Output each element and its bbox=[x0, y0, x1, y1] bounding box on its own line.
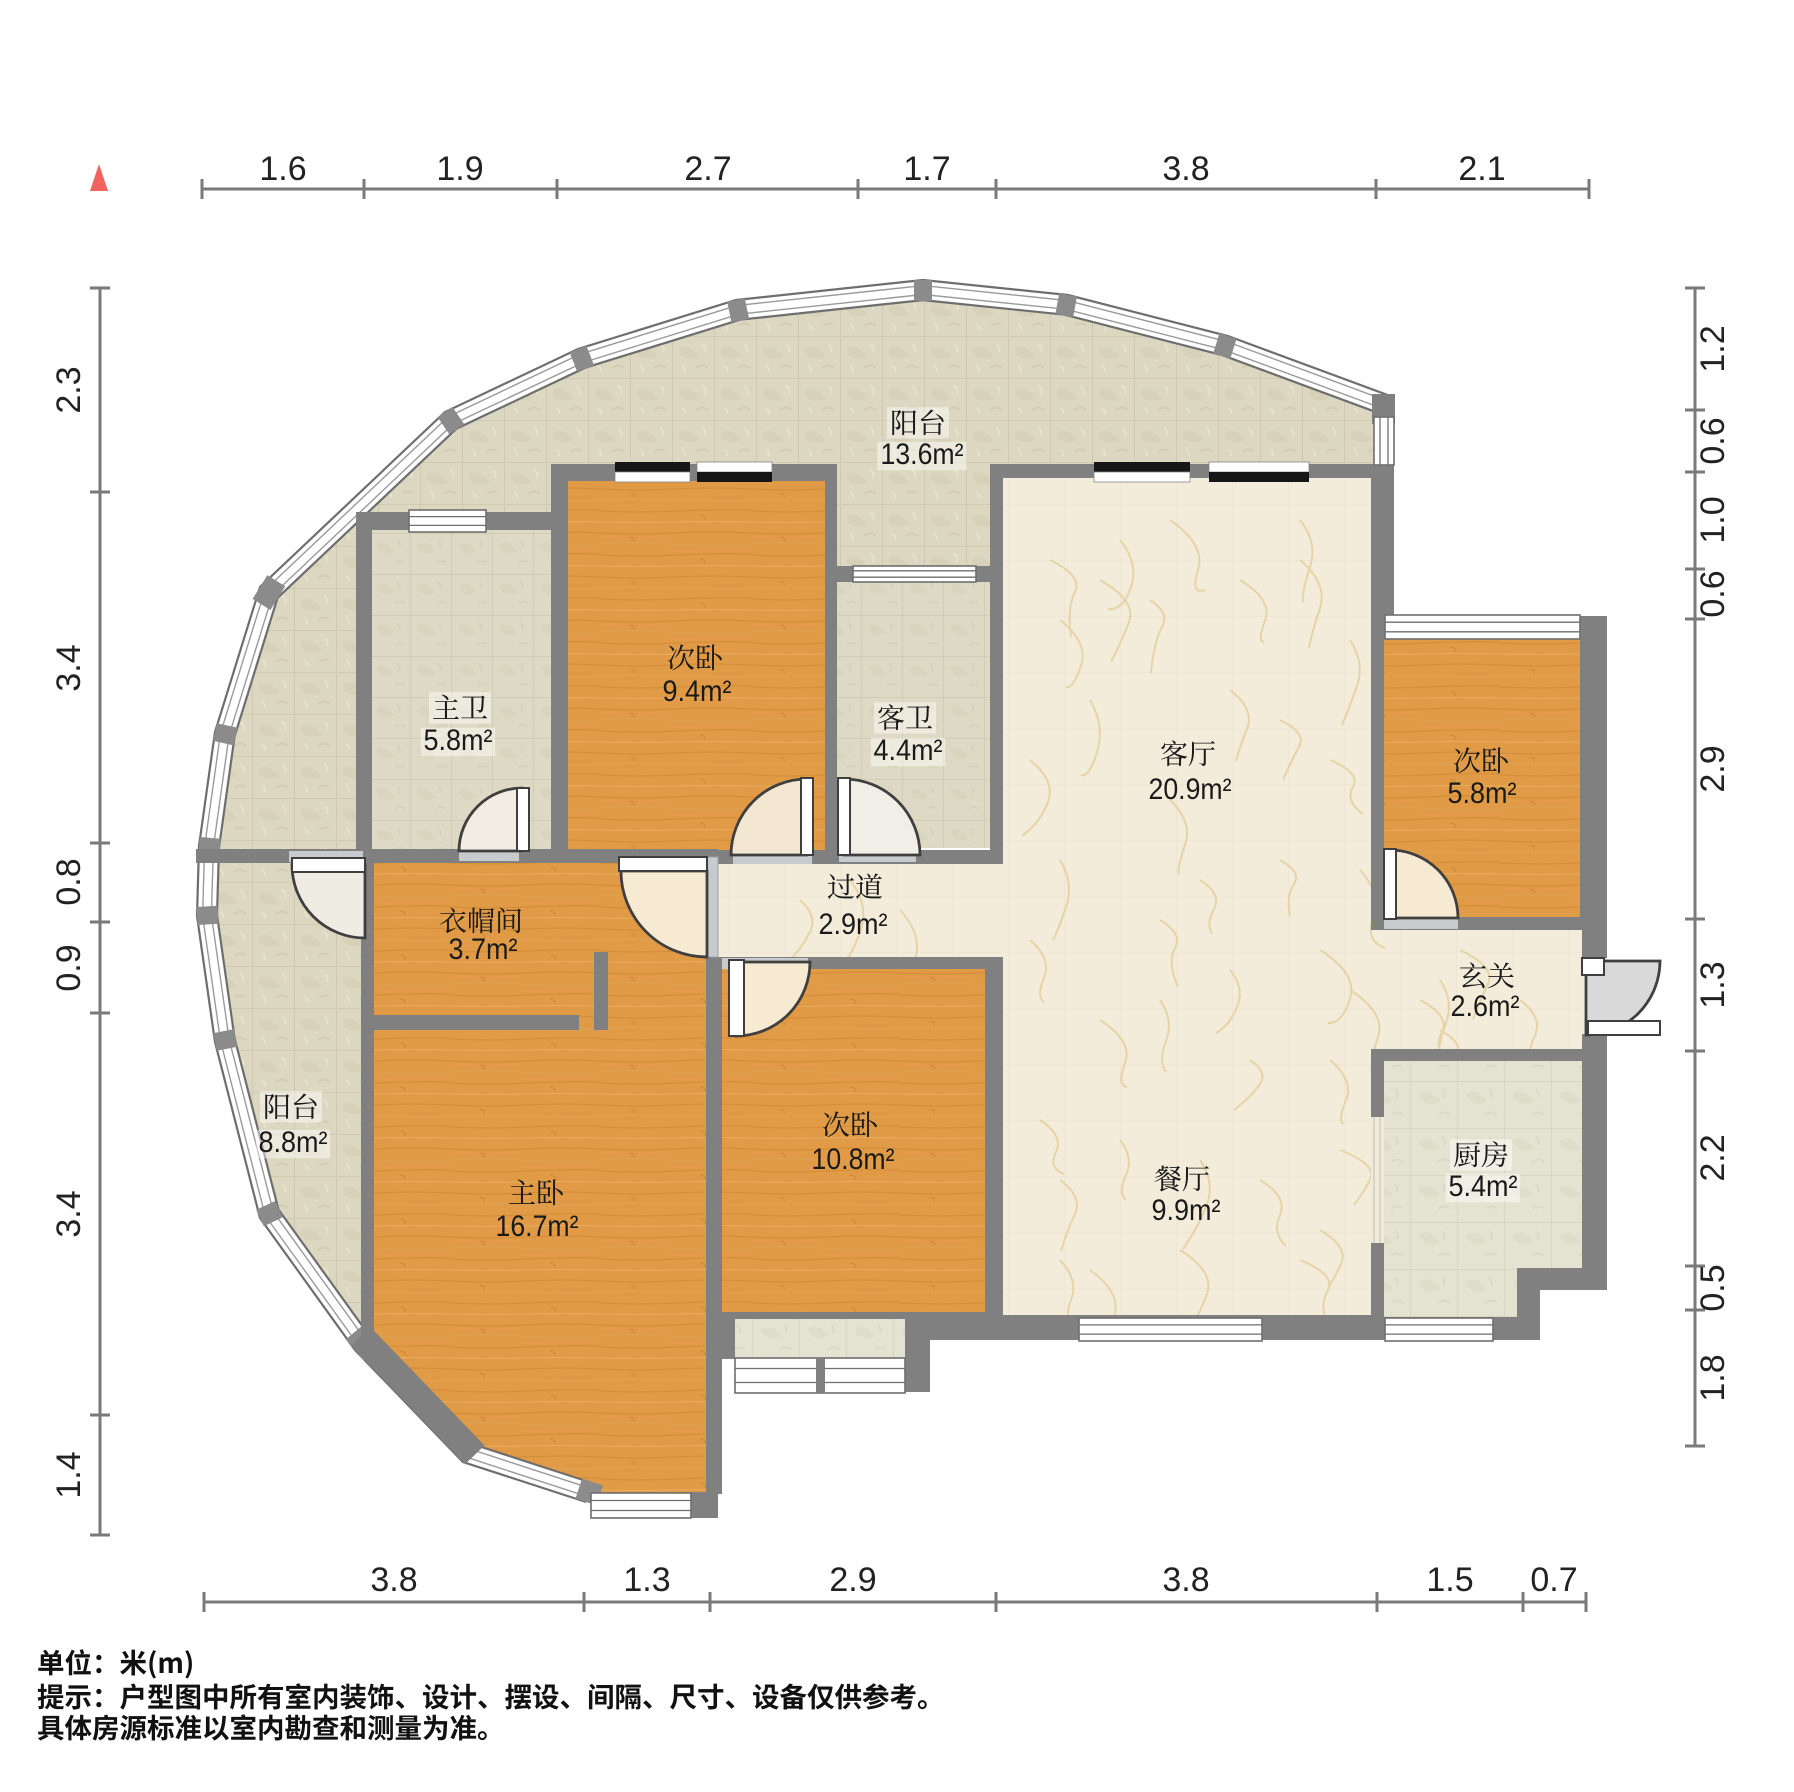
svg-text:3.4: 3.4 bbox=[50, 1190, 88, 1237]
svg-text:5.8m²: 5.8m² bbox=[1448, 777, 1517, 810]
svg-text:9.4m²: 9.4m² bbox=[663, 675, 732, 708]
svg-text:3.8: 3.8 bbox=[370, 1561, 417, 1599]
svg-text:1.4: 1.4 bbox=[50, 1451, 88, 1498]
svg-text:2.9: 2.9 bbox=[829, 1561, 876, 1599]
svg-text:3.7m²: 3.7m² bbox=[449, 933, 518, 966]
svg-text:0.9: 0.9 bbox=[50, 944, 88, 991]
svg-text:3.8: 3.8 bbox=[1162, 1561, 1209, 1599]
svg-text:0.6: 0.6 bbox=[1694, 417, 1732, 464]
svg-text:1.5: 1.5 bbox=[1426, 1561, 1473, 1599]
svg-text:1.3: 1.3 bbox=[1694, 961, 1732, 1008]
svg-text:1.8: 1.8 bbox=[1694, 1354, 1732, 1401]
svg-text:1.6: 1.6 bbox=[259, 150, 306, 188]
svg-text:4.4m²: 4.4m² bbox=[874, 734, 943, 767]
svg-text:1.7: 1.7 bbox=[903, 150, 950, 188]
svg-text:8.8m²: 8.8m² bbox=[259, 1126, 328, 1159]
svg-text:2.3: 2.3 bbox=[50, 366, 88, 413]
svg-text:0.8: 0.8 bbox=[50, 858, 88, 905]
svg-text:3.8: 3.8 bbox=[1162, 150, 1209, 188]
svg-text:1.2: 1.2 bbox=[1694, 325, 1732, 372]
svg-text:1.3: 1.3 bbox=[623, 1561, 670, 1599]
svg-text:0.6: 0.6 bbox=[1694, 570, 1732, 617]
svg-text:1.0: 1.0 bbox=[1694, 496, 1732, 543]
svg-text:13.6m²: 13.6m² bbox=[881, 438, 964, 471]
svg-text:5.8m²: 5.8m² bbox=[424, 724, 493, 757]
svg-text:10.8m²: 10.8m² bbox=[812, 1143, 895, 1176]
svg-text:2.2: 2.2 bbox=[1694, 1134, 1732, 1181]
svg-text:9.9m²: 9.9m² bbox=[1152, 1194, 1221, 1227]
svg-text:0.5: 0.5 bbox=[1694, 1264, 1732, 1311]
svg-text:2.7: 2.7 bbox=[684, 150, 731, 188]
svg-text:20.9m²: 20.9m² bbox=[1149, 773, 1232, 806]
svg-text:2.6m²: 2.6m² bbox=[1451, 990, 1520, 1023]
svg-text:0.7: 0.7 bbox=[1530, 1561, 1577, 1599]
svg-text:3.4: 3.4 bbox=[50, 644, 88, 691]
svg-text:2.9: 2.9 bbox=[1694, 745, 1732, 792]
svg-text:2.9m²: 2.9m² bbox=[819, 908, 888, 941]
svg-text:16.7m²: 16.7m² bbox=[496, 1210, 579, 1243]
svg-text:2.1: 2.1 bbox=[1458, 150, 1505, 188]
svg-text:1.9: 1.9 bbox=[436, 150, 483, 188]
svg-text:5.4m²: 5.4m² bbox=[1449, 1170, 1518, 1203]
